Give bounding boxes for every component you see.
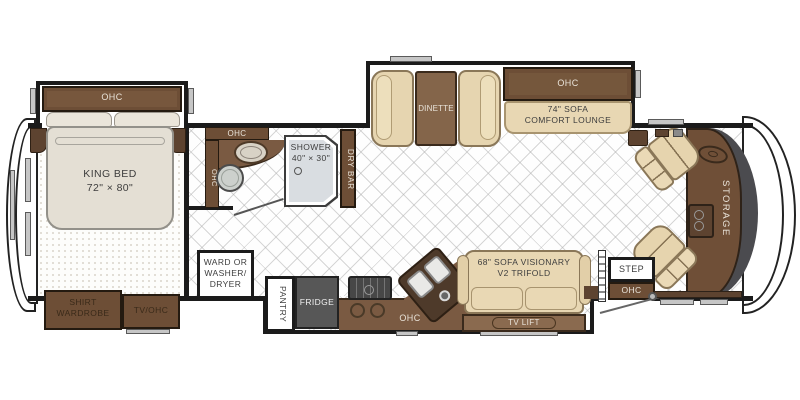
cupholder-icon xyxy=(694,221,704,231)
sofa-74-ohc-label: OHC xyxy=(503,78,633,88)
entry-ohc-label: OHC xyxy=(621,286,641,296)
mirror-icon xyxy=(648,292,657,301)
dash-top-vent xyxy=(673,129,683,137)
dry-bar-label: DRY BAR xyxy=(341,138,355,200)
bumper-strip xyxy=(396,331,418,336)
front-bottom-band xyxy=(654,291,742,298)
burner-icon xyxy=(370,303,385,318)
sofa-68-label-2: V2 TRIFOLD xyxy=(464,269,584,279)
burner-knob-icon xyxy=(364,285,374,295)
slideout-rail xyxy=(188,88,194,114)
dinette-bench xyxy=(458,70,501,147)
sofa-68-label-1: 68" SOFA VISIONARY xyxy=(464,258,584,268)
rear-window-strip xyxy=(10,170,15,240)
dinette-table: DINETTE xyxy=(415,71,457,146)
bath-sink-icon xyxy=(234,141,268,164)
slideout-rail xyxy=(30,88,36,114)
window-strip xyxy=(648,119,684,125)
king-bed-label-2: 72" × 80" xyxy=(46,182,174,194)
step-box: STEP xyxy=(608,257,655,282)
nightstand xyxy=(30,128,47,153)
shower-label-1: SHOWER xyxy=(284,143,338,153)
pillow xyxy=(46,112,112,127)
shower-drain-icon xyxy=(294,167,302,175)
shirt-wardrobe-label-1: SHIRT xyxy=(44,298,122,308)
window-strip xyxy=(660,299,694,305)
bedroom-ohc-label: OHC xyxy=(42,92,182,102)
dinette-label: DINETTE xyxy=(418,104,454,113)
rv-floorplan: STORAGE OHC KING BED 72" × xyxy=(0,0,800,400)
dinette-bench xyxy=(371,70,414,147)
sofa-68-cushion xyxy=(471,287,523,310)
tv-ohc-label: TV/OHC xyxy=(122,306,180,316)
tv-lift-label: TV LIFT xyxy=(508,318,540,327)
window-strip xyxy=(25,212,31,256)
dash-top-vent xyxy=(655,129,669,137)
cupholder-icon xyxy=(694,210,704,220)
storage-label: STORAGE xyxy=(712,166,730,250)
ward-label-2: WASHER/ xyxy=(197,269,254,279)
bath-ohc-top-label: OHC xyxy=(205,129,269,138)
sofa-74-label-2: COMFORT LOUNGE xyxy=(504,116,632,126)
sofa-68-cushion xyxy=(525,287,577,310)
king-bed-label-1: KING BED xyxy=(46,168,174,180)
fridge: FRIDGE xyxy=(295,276,339,329)
slideout-rail xyxy=(390,56,432,62)
burner-icon xyxy=(350,303,365,318)
cooktop xyxy=(348,276,392,300)
slideout-rail xyxy=(635,70,641,98)
window-strip xyxy=(25,158,31,202)
sofa-74-label-1: 74" SOFA xyxy=(504,105,632,115)
window-strip xyxy=(700,299,728,305)
step-label: STEP xyxy=(619,264,644,274)
pantry-label: PANTRY xyxy=(273,282,287,326)
ward-label-1: WARD OR xyxy=(197,258,254,268)
bumper-strip xyxy=(126,329,170,334)
fridge-label: FRIDGE xyxy=(300,298,335,308)
pillow xyxy=(114,112,180,127)
shirt-wardrobe-label-2: WARDROBE xyxy=(44,309,122,319)
shower-label-2: 40" × 30" xyxy=(284,154,338,164)
cockpit-corner-cabinet xyxy=(628,130,648,146)
entry-grab-handle xyxy=(598,250,606,302)
toilet-icon xyxy=(216,164,244,192)
ward-label-3: DRYER xyxy=(197,280,254,290)
faucet-icon xyxy=(437,288,452,303)
tv-lift-pill: TV LIFT xyxy=(492,317,556,329)
